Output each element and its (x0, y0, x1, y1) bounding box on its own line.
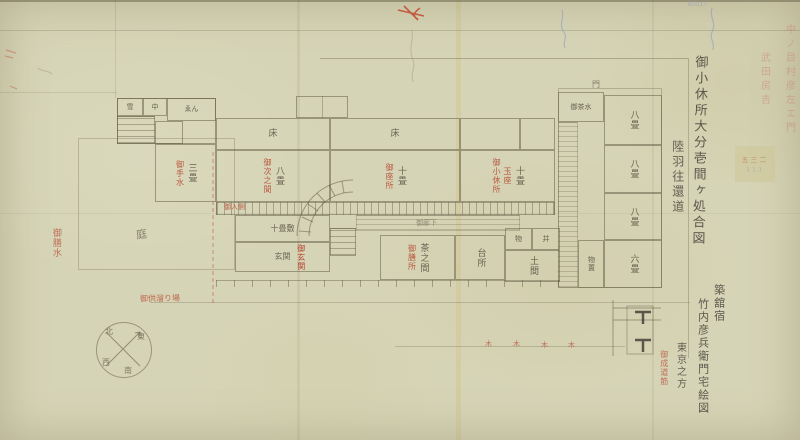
water-annotation: 御膳水 (50, 228, 60, 258)
room-doma: 土間 (505, 250, 560, 282)
room-audience-red: 御座所 (385, 163, 393, 190)
paper-top-edge (0, 0, 800, 2)
gate-top-label: 門 (592, 79, 600, 90)
room-next-chamber-red: 御次之間 (263, 158, 271, 194)
boundary-lower (395, 346, 625, 347)
annex-cell-2: 中 (143, 98, 167, 116)
gate-structure (613, 300, 661, 356)
room-next-chamber-label: 八畳 (274, 166, 283, 186)
corridor-label: 御廊下 (416, 218, 437, 228)
wing-room-4-label: 六畳 (629, 254, 638, 274)
cell-well-label: 井 (543, 236, 550, 243)
room-tea-label: 茶之間 (419, 243, 428, 273)
tokonoma-strip-a: 床 (216, 118, 330, 150)
cell-well: 井 (532, 228, 560, 250)
washroom-red-label: 御手水 (176, 160, 184, 187)
bottom-post-ticks (216, 280, 560, 287)
annex-small-cell (155, 121, 183, 144)
boundary-top (320, 58, 688, 59)
tree-mark-4: 木 (568, 342, 575, 350)
red-cursive-column-1: 中ノ目村彦左エ門 (783, 24, 795, 136)
room-kitchen: 台所 (455, 235, 505, 280)
tokonoma-a-label: 床 (268, 130, 277, 139)
cell-storage: 物 (505, 228, 532, 250)
room-tea: 御膳所 茶之間 (380, 235, 455, 280)
room-audience: 御座所 十畳 (330, 150, 460, 202)
tree-mark-1: 木 (485, 341, 492, 349)
annex-cell-3-label: ゑん (185, 106, 199, 113)
compass-south: 南 (124, 365, 132, 376)
tokonoma-strip-d (520, 118, 555, 150)
crease-horizontal-left (0, 92, 117, 93)
wing-room-2-label: 八畳 (629, 159, 638, 179)
stamp-blue-text: 113 (746, 167, 763, 174)
tree-mark-2: 木 (513, 341, 520, 349)
garden-label: 庭 (135, 225, 148, 242)
pencil-scribble (38, 30, 414, 82)
tree-mark-3: 木 (541, 342, 548, 350)
tokonoma-strip-c (460, 118, 520, 150)
annex-cell-2-label: 中 (152, 104, 159, 111)
room-kitchen-label: 台所 (476, 248, 485, 268)
wing-room-4: 六畳 (604, 240, 662, 288)
wing-storage-label: 物置 (588, 256, 595, 272)
room-tea-red: 御膳所 (408, 244, 416, 271)
room-imperial-rest: 御小休所 玉座 十畳 (460, 150, 555, 202)
room-genkan: 玄関 (235, 242, 330, 272)
annex-stairs-hatch (117, 116, 155, 144)
wing-room-1-label: 八畳 (629, 110, 638, 130)
veranda-hatch (216, 202, 555, 215)
washroom-label: 三畳 (187, 163, 196, 183)
red-correction-mark (398, 6, 424, 20)
wing-room-3-label: 八畳 (629, 207, 638, 227)
entrance-red-label: 御玄関 (296, 244, 305, 271)
compass-rose: 北 東 西 南 (96, 322, 152, 378)
cell-storage-label: 物 (515, 236, 522, 243)
room-next-chamber: 御次之間 八畳 (216, 150, 330, 202)
main-title: 御小休所大分壱間ヶ処合図 (688, 55, 706, 247)
red-corner-dashes (5, 50, 17, 89)
veranda-label: 御入側 (224, 204, 245, 212)
annex-cell-1-label: 雪 (127, 104, 134, 111)
direction-tokyo: 東京之方 (674, 342, 686, 390)
wing-room-3: 八畳 (604, 193, 662, 240)
wing-room-1: 八畳 (604, 95, 662, 145)
owner-name: 竹内彦兵衛門宅絵図 (696, 298, 709, 415)
stamp-red-text: 五三二 (742, 155, 769, 165)
washroom: 御手水 三畳 (155, 144, 216, 202)
blue-pencil-scribbles (561, 8, 713, 50)
wing-room-2: 八畳 (604, 145, 662, 193)
road-title: 陸羽往還道 (670, 140, 684, 215)
annex-cell-1: 雪 (117, 98, 143, 116)
corridor-hatch (356, 215, 520, 231)
tokonoma-b-label: 床 (390, 130, 399, 139)
faded-archive-stamp: 五三二 113 (735, 146, 775, 182)
crease-horizontal-top (0, 30, 800, 31)
red-cursive-column-2: 武田房吉 (758, 52, 770, 108)
route-red-label: 御成道筋 (659, 350, 668, 386)
room-imperial-rest-red: 御小休所 (492, 158, 500, 194)
room-imperial-rest-red2: 玉座 (503, 167, 511, 185)
room-genkan-label: 玄関 (275, 253, 291, 261)
room-ten-mat: 十畳敷 (235, 215, 330, 242)
room-teawater-label: 御茶水 (571, 104, 592, 111)
retinue-annotation: 御供溜り場 (140, 295, 180, 304)
room-ten-mat-label: 十畳敷 (271, 225, 295, 233)
wing-storage: 物置 (578, 240, 604, 288)
compass-west: 西 (102, 357, 110, 368)
compass-north: 北 (105, 326, 113, 337)
right-corridor-hatch (558, 122, 578, 288)
upper-small-block (296, 96, 348, 118)
room-imperial-rest-label: 十畳 (514, 166, 523, 186)
genkan-step-hatch (330, 228, 356, 256)
blue-archive-number: 65517 (688, 1, 707, 8)
compass-east: 東 (137, 331, 145, 342)
town-name: 築舘宿 (712, 284, 725, 323)
boundary-bottom (150, 302, 690, 303)
crease-vertical-annex (115, 0, 116, 98)
room-doma-label: 土間 (528, 256, 537, 276)
room-audience-label: 十畳 (396, 166, 405, 186)
scanned-floor-plan: 庭 雪 中 ゑん 御手水 三畳 床 床 御次之間 八畳 御座所 十畳 御小休所 … (0, 0, 800, 440)
room-teawater: 御茶水 (558, 92, 604, 122)
annex-cell-3: ゑん (167, 98, 216, 121)
tokonoma-strip-b: 床 (330, 118, 460, 150)
